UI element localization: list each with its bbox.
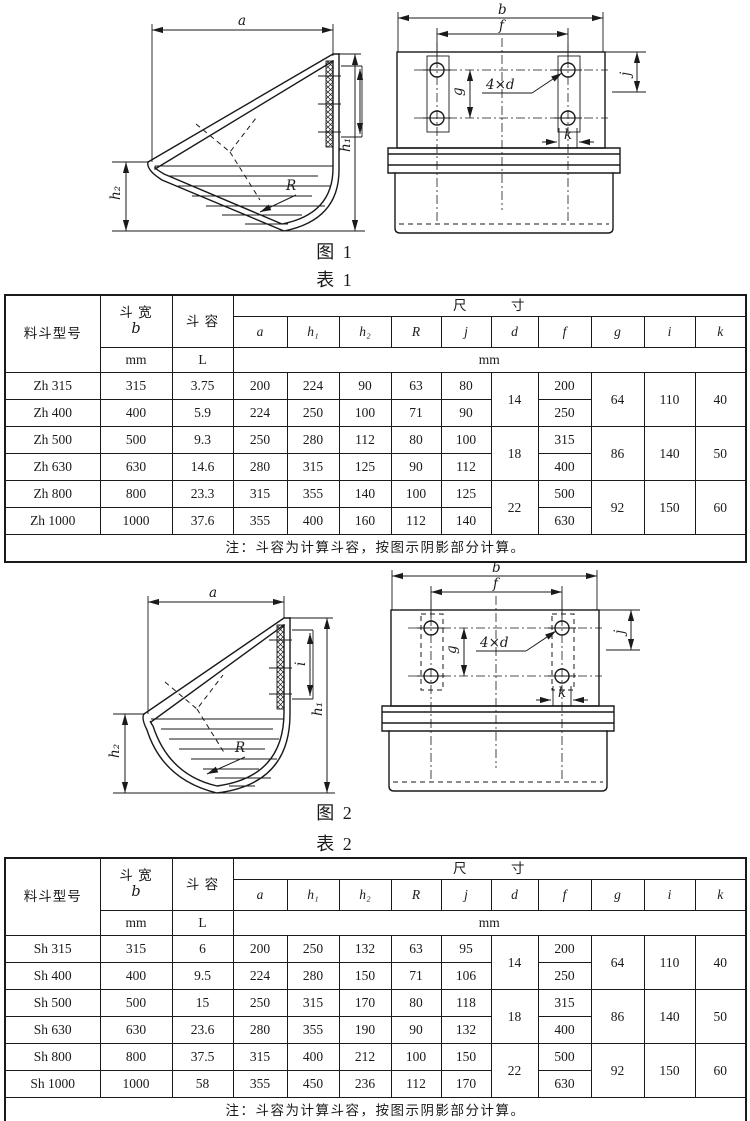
figure1-caption: 图 1: [0, 238, 670, 264]
header-dim-letter: h₁: [287, 317, 339, 348]
header-width-symbol: b: [101, 884, 172, 901]
cell: 800: [100, 1044, 172, 1071]
cell: 110: [644, 373, 695, 427]
cell: Sh 315: [5, 936, 100, 963]
dim-label-b: b: [492, 560, 501, 576]
cell: 355: [287, 1017, 339, 1044]
header-dimensions: 尺 寸: [233, 295, 746, 317]
dim-label-h1: h₁: [310, 702, 326, 716]
cell: 92: [591, 1044, 644, 1098]
cell: 630: [538, 508, 591, 535]
table-header-row: 料斗型号 斗 宽 b 斗 容 尺 寸: [5, 295, 746, 317]
figure1-side-drawing: a h₂ h₁ R: [98, 2, 380, 244]
cell: 400: [287, 1044, 339, 1071]
cell: 60: [695, 481, 746, 535]
cell: 64: [591, 936, 644, 990]
cell: 355: [287, 481, 339, 508]
cell: 170: [441, 1071, 491, 1098]
cell: 132: [441, 1017, 491, 1044]
table-row: Zh 315 315 3.75 200 224 90 63 80 14 200 …: [5, 373, 746, 400]
cell: 280: [233, 1017, 287, 1044]
cell: 23.6: [172, 1017, 233, 1044]
cell: 14: [491, 373, 538, 427]
cell: 125: [441, 481, 491, 508]
header-dim-letter: f: [538, 880, 591, 911]
cell: 58: [172, 1071, 233, 1098]
cell: 86: [591, 427, 644, 481]
header-dim-letter: a: [233, 317, 287, 348]
cell: 37.5: [172, 1044, 233, 1071]
cell: 80: [391, 427, 441, 454]
cell: 112: [441, 454, 491, 481]
cell: 5.9: [172, 400, 233, 427]
dim-label-g: g: [444, 645, 460, 654]
table-2: 料斗型号 斗 宽 b 斗 容 尺 寸 a h₁ h₂ R j d f g i k…: [4, 857, 747, 1121]
table-note-row: 注：斗容为计算斗容，按图示阴影部分计算。: [5, 1098, 746, 1121]
cell: 280: [233, 454, 287, 481]
cell: 40: [695, 936, 746, 990]
dim-label-a: a: [209, 585, 217, 601]
cell: 3.75: [172, 373, 233, 400]
header-capacity: 斗 容: [172, 858, 233, 911]
hole-callout: 4×d: [479, 635, 509, 651]
cell: 200: [233, 373, 287, 400]
cell: Zh 1000: [5, 508, 100, 535]
cell: 315: [233, 1044, 287, 1071]
cell: 224: [233, 963, 287, 990]
header-model: 料斗型号: [5, 295, 100, 373]
cell: 23.3: [172, 481, 233, 508]
table-units-row: mm L mm: [5, 348, 746, 373]
header-width-cn: 斗 宽: [101, 868, 172, 884]
cell: 112: [391, 508, 441, 535]
header-dim-letter: h₂: [339, 880, 391, 911]
table-row: Zh 800 800 23.3 315 355 140 100 125 22 5…: [5, 481, 746, 508]
cell: 200: [538, 373, 591, 400]
header-dim-letter: d: [491, 880, 538, 911]
figure2-side-drawing: a i h₂ h₁ R: [103, 562, 385, 804]
dim-label-i: i: [293, 662, 309, 666]
cell: 250: [233, 990, 287, 1017]
cell: 18: [491, 990, 538, 1044]
cell: 200: [538, 936, 591, 963]
cell: 100: [441, 427, 491, 454]
figure2-caption: 图 2: [0, 799, 670, 825]
cell: 112: [339, 427, 391, 454]
table-1: 料斗型号 斗 宽 b 斗 容 尺 寸 a h₁ h₂ R j d f g i k…: [4, 294, 747, 563]
unit-mm: mm: [100, 911, 172, 936]
cell: 315: [100, 373, 172, 400]
cell: 15: [172, 990, 233, 1017]
cell: 355: [233, 508, 287, 535]
cell: 18: [491, 427, 538, 481]
cell: 125: [339, 454, 391, 481]
cell: 150: [441, 1044, 491, 1071]
cell: 250: [233, 427, 287, 454]
header-width-cn: 斗 宽: [101, 305, 172, 321]
header-width-symbol: b: [101, 321, 172, 338]
cell: 315: [287, 454, 339, 481]
cell: 212: [339, 1044, 391, 1071]
cell: 450: [287, 1071, 339, 1098]
figure1-front-drawing: b f j g 4×d k: [386, 2, 650, 244]
cell: Zh 500: [5, 427, 100, 454]
cell: 106: [441, 963, 491, 990]
cell: 63: [391, 373, 441, 400]
cell: 250: [287, 936, 339, 963]
header-width: 斗 宽 b: [100, 858, 172, 911]
header-dim-letter: g: [591, 880, 644, 911]
table-row: Sh 800 800 37.5 315 400 212 100 150 22 5…: [5, 1044, 746, 1071]
header-dim-letter: a: [233, 880, 287, 911]
cell: 9.3: [172, 427, 233, 454]
cell: 71: [391, 963, 441, 990]
cell: 112: [391, 1071, 441, 1098]
header-dim-letter: j: [441, 317, 491, 348]
table1-caption: 表 1: [0, 266, 670, 292]
dim-label-f: f: [498, 18, 506, 34]
header-dim-letter: g: [591, 317, 644, 348]
cell: 280: [287, 963, 339, 990]
cell: Zh 630: [5, 454, 100, 481]
cell: 50: [695, 990, 746, 1044]
dim-label-R: R: [234, 740, 245, 756]
cell: 1000: [100, 1071, 172, 1098]
table-row: Sh 315 315 6 200 250 132 63 95 14 200 64…: [5, 936, 746, 963]
table2-caption: 表 2: [0, 830, 670, 856]
cell: 170: [339, 990, 391, 1017]
header-dim-letter: d: [491, 317, 538, 348]
unit-l: L: [172, 348, 233, 373]
cell: 400: [100, 963, 172, 990]
cell: 250: [538, 963, 591, 990]
cell: 6: [172, 936, 233, 963]
cell: 280: [287, 427, 339, 454]
cell: 236: [339, 1071, 391, 1098]
cell: 630: [100, 454, 172, 481]
cell: 14.6: [172, 454, 233, 481]
header-dim-letter: i: [644, 880, 695, 911]
cell: 150: [644, 1044, 695, 1098]
cell: 500: [100, 427, 172, 454]
unit-mm: mm: [233, 348, 746, 373]
cell: 250: [538, 400, 591, 427]
dim-label-h1: h₁: [338, 138, 354, 152]
cell: 355: [233, 1071, 287, 1098]
cell: 40: [695, 373, 746, 427]
cell: 400: [538, 454, 591, 481]
cell: 400: [538, 1017, 591, 1044]
cell: 315: [538, 427, 591, 454]
cell: 190: [339, 1017, 391, 1044]
cell: Zh 800: [5, 481, 100, 508]
cell: Sh 800: [5, 1044, 100, 1071]
cell: 100: [339, 400, 391, 427]
cell: 60: [695, 1044, 746, 1098]
cell: 80: [441, 373, 491, 400]
header-dim-letter: h₁: [287, 880, 339, 911]
header-width: 斗 宽 b: [100, 295, 172, 348]
header-dim-letter: k: [695, 880, 746, 911]
header-model: 料斗型号: [5, 858, 100, 936]
dim-label-f: f: [492, 576, 500, 592]
cell: 90: [339, 373, 391, 400]
unit-mm: mm: [233, 911, 746, 936]
document-page: a h₂ h₁ R b f j: [0, 0, 750, 1121]
cell: 9.5: [172, 963, 233, 990]
cell: 1000: [100, 508, 172, 535]
header-dim-letter: h₂: [339, 317, 391, 348]
cell: Zh 400: [5, 400, 100, 427]
cell: 315: [287, 990, 339, 1017]
cell: 80: [391, 990, 441, 1017]
cell: 630: [538, 1071, 591, 1098]
dim-label-j: j: [612, 630, 628, 637]
table-row: Zh 500 500 9.3 250 280 112 80 100 18 315…: [5, 427, 746, 454]
cell: 132: [339, 936, 391, 963]
cell: 64: [591, 373, 644, 427]
cell: 50: [695, 427, 746, 481]
cell: 92: [591, 481, 644, 535]
cell: 22: [491, 481, 538, 535]
cell: 90: [391, 1017, 441, 1044]
cell: 160: [339, 508, 391, 535]
dim-label-a: a: [238, 13, 246, 29]
unit-mm: mm: [100, 348, 172, 373]
cell: 63: [391, 936, 441, 963]
cell: 500: [538, 1044, 591, 1071]
dim-label-g: g: [450, 87, 466, 96]
cell: 100: [391, 481, 441, 508]
header-dim-letter: f: [538, 317, 591, 348]
cell: Sh 500: [5, 990, 100, 1017]
cell: 140: [339, 481, 391, 508]
header-capacity: 斗 容: [172, 295, 233, 348]
cell: 250: [287, 400, 339, 427]
cell: 630: [100, 1017, 172, 1044]
cell: 500: [100, 990, 172, 1017]
dim-label-k: k: [564, 127, 572, 143]
figure2-front-drawing: b f j g 4×d k: [380, 560, 644, 802]
cell: 95: [441, 936, 491, 963]
cell: 400: [287, 508, 339, 535]
header-dim-letter: j: [441, 880, 491, 911]
cell: Sh 400: [5, 963, 100, 990]
cell: 110: [644, 936, 695, 990]
cell: 140: [644, 990, 695, 1044]
table-header-row: 料斗型号 斗 宽 b 斗 容 尺 寸: [5, 858, 746, 880]
cell: 14: [491, 936, 538, 990]
cell: 224: [287, 373, 339, 400]
cell: 90: [391, 454, 441, 481]
table-note-row: 注：斗容为计算斗容，按图示阴影部分计算。: [5, 535, 746, 563]
cell: 71: [391, 400, 441, 427]
cell: 140: [644, 427, 695, 481]
unit-l: L: [172, 911, 233, 936]
cell: 315: [538, 990, 591, 1017]
header-dim-letter: R: [391, 317, 441, 348]
header-dim-letter: R: [391, 880, 441, 911]
hole-callout: 4×d: [485, 77, 515, 93]
header-dim-letter: i: [644, 317, 695, 348]
table-note: 注：斗容为计算斗容，按图示阴影部分计算。: [5, 535, 746, 563]
cell: 118: [441, 990, 491, 1017]
cell: 200: [233, 936, 287, 963]
cell: Sh 1000: [5, 1071, 100, 1098]
cell: 22: [491, 1044, 538, 1098]
cell: 37.6: [172, 508, 233, 535]
cell: 315: [100, 936, 172, 963]
cell: 400: [100, 400, 172, 427]
table-row: Sh 500 500 15 250 315 170 80 118 18 315 …: [5, 990, 746, 1017]
cell: 150: [339, 963, 391, 990]
dim-label-h2: h₂: [107, 744, 123, 758]
dim-label-R: R: [285, 178, 296, 194]
cell: 500: [538, 481, 591, 508]
dim-label-b: b: [498, 2, 507, 18]
cell: 800: [100, 481, 172, 508]
cell: Zh 315: [5, 373, 100, 400]
cell: 90: [441, 400, 491, 427]
dim-label-h2: h₂: [108, 186, 124, 200]
cell: 140: [441, 508, 491, 535]
cell: 315: [233, 481, 287, 508]
table-units-row: mm L mm: [5, 911, 746, 936]
cell: 86: [591, 990, 644, 1044]
table-note: 注：斗容为计算斗容，按图示阴影部分计算。: [5, 1098, 746, 1121]
header-dim-letter: k: [695, 317, 746, 348]
header-dimensions: 尺 寸: [233, 858, 746, 880]
cell: 100: [391, 1044, 441, 1071]
dim-label-j: j: [618, 72, 634, 79]
dim-label-k: k: [558, 685, 566, 701]
cell: Sh 630: [5, 1017, 100, 1044]
cell: 150: [644, 481, 695, 535]
cell: 224: [233, 400, 287, 427]
